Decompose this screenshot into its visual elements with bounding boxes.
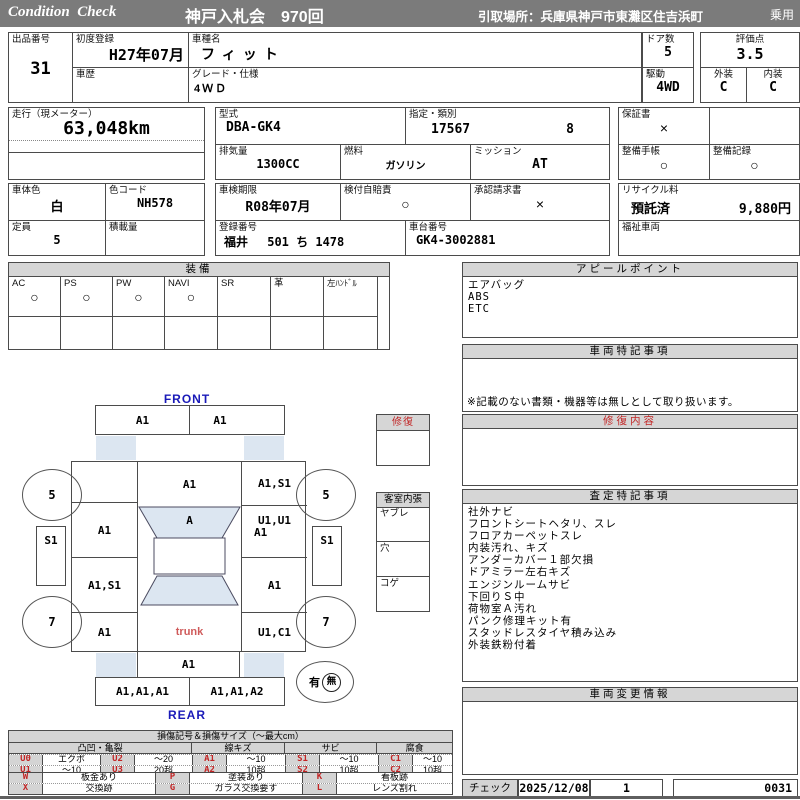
class-no-value: 17567 [431,122,470,137]
model-code-box: 型式 DBA-GK4 指定・類別 17567 8 排気量 1300CC 燃料 ガ… [215,107,610,180]
vehicle-notes-section: 車両特記事項 ※記載のない書類・機器等は無しとして取り扱います。 [462,344,798,412]
equipment-cell-lhd: 左ﾊﾝﾄﾞﾙ [324,277,378,317]
load-label: 積載量 [106,221,204,233]
model-code-value: DBA-GK4 [216,120,405,135]
doors-drive-box: ドア数 5 駆動 4WD [642,32,694,103]
trunk-label: trunk [138,613,241,651]
rear-pillar-right [244,653,284,677]
assessment-item: 下回りＳ中 [468,591,797,603]
presence-no-label-circled: 無 [322,673,341,692]
equipment-table: 装備 AC ○ PS ○ PW ○ NAVI ○ SR 革 左ﾊﾝﾄﾞﾙ [8,262,390,350]
inspection-label: 車検期限 [216,184,340,196]
history-label: 車歴 [73,68,188,80]
model-name-cell: 車種名 フィット [189,33,641,68]
repair-presence-ellipse: 有 無 [296,661,354,703]
change-info-body [463,702,797,704]
chassis-value: GK4-3002881 [406,233,609,247]
equipment-cell-ps: PS ○ [61,277,113,317]
mission-value: AT [471,157,609,172]
capacity-cell: 定員 5 [9,221,106,255]
legend-code: U0 [9,755,43,765]
insurance-cell: 検付自賠責 ○ [341,184,471,221]
hood-right-cell: A1 [190,406,284,434]
maintenance-book-cell: 整備手帳 ○ [619,145,710,179]
legend-title: 損傷記号＆損傷サイズ（〜最大cm） [9,731,452,743]
tailgate-mark: A1 [138,652,239,676]
color-box: 車体色 白 色コード NH578 定員 5 積載量 [8,183,205,256]
interior-value: C [747,80,799,95]
equipment-cell-pw: PW ○ [113,277,165,317]
legend-row: U0 エクボ U2 〜20 A1 〜10 S1 〜10 C1 〜10 [9,754,452,765]
damage-legend-table: 損傷記号＆損傷サイズ（〜最大cm） 凸凹・亀裂 線キズ サビ 腐食 U0 エクボ… [8,730,453,777]
legend-value: 塗装あり [190,773,303,783]
left-door-rear-mark: A1,S1 [72,558,137,612]
appeal-section: アピールポイント エアバッグ ABS ETC [462,262,798,338]
fuel-label: 燃料 [341,145,470,157]
equipment-label: PW [113,277,164,289]
rear-bumper-bar: A1,A1,A1 A1,A1,A2 [95,677,285,706]
displacement-cell: 排気量 1300CC [216,145,341,179]
body-color-value: 白 [9,196,105,215]
assessment-item: スタッドレスタイヤ積み込み [468,627,797,639]
brand-logo: Condition Check [8,4,116,21]
right-door-rear-cell: A1 [241,558,307,613]
legend-group-rust: サビ [285,743,378,753]
mission-cell: ミッション AT [471,145,609,179]
warranty-mark: × [619,120,709,136]
recycle-box: リサイクル料 預託済 9,880円 福祉車両 [618,183,800,256]
check-label-cell: チェック [462,779,518,797]
maintenance-record-mark: ○ [710,157,799,173]
equipment-label: PS [61,277,112,289]
wheel-rear-left: 7 [22,596,82,648]
equipment-label: 革 [271,277,323,289]
left-door-rear-cell: A1,S1 [72,558,138,613]
wheel-front-left: 5 [22,469,82,521]
class-label: 指定・類別 [406,108,609,120]
legend-code: K [303,773,337,783]
mission-label: ミッション [471,145,609,157]
assessment-title: 査定特記事項 [463,490,797,504]
front-label: FRONT [147,392,227,406]
equipment-mark: ○ [9,289,60,305]
rear-pillar-left [96,653,136,677]
car-body: A1 A1,S1 A1 A1 A trunk A1,S1 U1,U1 A1 [71,461,306,652]
reg-no-value: 福井 501 ち 1478 [216,233,405,250]
equipment-empty-cell [61,317,113,349]
change-info-section: 車両変更情報 [462,687,798,775]
legend-value: ガラス交換要す [190,784,303,794]
front-pillar-left [96,436,136,460]
repair-detail-title: 修復内容 [463,415,797,429]
legend-value: 板金あり [43,773,156,783]
maintenance-book-mark: ○ [619,157,709,173]
fuel-value: ガソリン [341,157,470,172]
maintenance-record-cell: 整備記録 ○ [710,145,799,179]
change-info-title: 車両変更情報 [463,688,797,702]
mirror-right-mark: S1 [313,527,341,547]
tailgate-cell: A1 [137,652,240,677]
legend-code: L [303,784,337,794]
equipment-empty-cell [113,317,165,349]
legend-code: A1 [193,755,227,765]
grade-label: グレード・仕様 [189,68,641,80]
page-bottom-rule [0,796,800,799]
inspection-value: R08年07月 [216,196,340,215]
cabin-lining-row-tear: ヤブレ [377,507,429,542]
model-name-value: フィット [189,44,641,64]
right-door-front-cell: U1,U1 A1 [241,506,307,558]
score-box: 評価点 3.5 外装 C 内装 C [700,32,800,103]
rear-label: REAR [147,708,227,722]
fuel-cell: 燃料 ガソリン [341,145,471,179]
hood-left-cell: A1 [96,406,190,434]
vehicle-notes-title: 車両特記事項 [463,345,797,359]
exterior-cell: 外装 C [701,68,747,102]
warranty-empty-cell [710,108,799,145]
repair-flag-box: 修復 [376,414,430,466]
assessment-item: フロントシートヘタリ、スレ [468,518,797,530]
mirror-left-box: S1 [36,526,66,586]
warranty-label: 保証書 [619,108,709,120]
mileage-value: 63,048km [9,118,204,139]
drive-cell: 駆動 4WD [643,68,693,102]
doors-value: 5 [643,45,693,60]
hood-right-mark: A1 [190,406,250,434]
lot-number-cell: 出品番号 31 [9,33,73,102]
check-date-cell: 2025/12/08 [518,779,590,797]
load-cell: 積載量 [106,221,204,255]
windshield-mark: A [138,510,241,530]
right-door-front-mark2: A1 [242,527,307,539]
interior-label: 内装 [747,68,799,80]
right-door-front-mark1: U1,U1 [242,515,307,527]
recycle-status: 預託済 [631,198,670,217]
displacement-label: 排気量 [216,145,340,157]
vehicle-class: 乗用 [770,6,794,23]
vehicle-id-box: 出品番号 31 初度登録 H27年07月 車歴 車種名 フィット グレード・仕様… [8,32,642,103]
cabin-lining-box: 客室内張 ヤブレ 穴 コゲ [376,492,430,612]
exterior-label: 外装 [701,68,746,80]
check-count: 1 [591,780,662,796]
color-code-value: NH578 [106,196,204,210]
wheel-front-right: 5 [296,469,356,521]
mileage-cell: 走行（現メーター） 63,048km [9,108,204,141]
lot-number-value: 31 [9,59,72,79]
doors-label: ドア数 [643,33,693,45]
assessment-item: フロアカーペットスレ [468,530,797,542]
first-reg-cell: 初度登録 H27年07月 [73,33,189,68]
warranty-box: 保証書 × 整備手帳 ○ 整備記録 ○ [618,107,800,180]
reg-no-label: 登録番号 [216,221,405,233]
wheel-rear-right: 7 [296,596,356,648]
check-date: 2025/12/08 [519,780,589,796]
insurance-label: 検付自賠責 [341,184,470,196]
legend-code: C1 [379,755,413,765]
cabin-lining-row-label: 穴 [377,542,429,554]
warranty-cell: 保証書 × [619,108,710,145]
recycle-cell: リサイクル料 預託済 9,880円 [619,184,799,221]
assessment-item: パンク修理キット有 [468,615,797,627]
appeal-item: ETC [468,303,797,315]
mileage-extra-row [9,141,204,153]
equipment-label: 左ﾊﾝﾄﾞﾙ [324,277,377,289]
legend-value: エクボ [43,755,101,765]
assessment-item: アンダーカバー１部欠損 [468,554,797,566]
equipment-cell-leather: 革 [271,277,324,317]
doors-cell: ドア数 5 [643,33,693,68]
equipment-cell-navi: NAVI ○ [165,277,218,317]
score-cell: 評価点 3.5 [701,33,799,68]
equipment-empty-cell [218,317,271,349]
pickup-location: 引取場所：兵庫県神戸市東灘区住吉浜町 [478,6,703,25]
roof-panel-shape [154,538,225,574]
legend-code: G [156,784,190,794]
presence-yes-label: 有 [309,674,320,690]
legend-code: U2 [101,755,135,765]
legend-code: X [9,784,43,794]
assessment-item: ドアミラー左右キズ [468,566,797,578]
interior-cell: 内装 C [747,68,799,102]
model-code-label: 型式 [216,108,405,120]
appeal-item: エアバッグ [468,279,797,291]
equipment-cell-sr: SR [218,277,271,317]
left-door-front-cell: A1 [72,503,138,558]
assessment-item: 内装汚れ、キズ [468,542,797,554]
reg-no-cell: 登録番号 福井 501 ち 1478 [216,221,406,255]
auction-title: 神戸入札会 970回 [185,3,324,27]
mirror-right-box: S1 [312,526,342,586]
legend-value: 〜10 [227,755,286,765]
appeal-item: ABS [468,291,797,303]
legend-code: W [9,773,43,783]
approval-label: 承認請求書 [471,184,609,196]
trunk-cell: trunk [138,613,241,651]
roof-front-mark: A1 [138,462,241,506]
legend-value: レンズ割れ [337,784,452,794]
sheet-number-cell: 0031 [673,779,798,797]
repair-detail-body [463,429,797,431]
score-value: 3.5 [701,45,799,63]
repair-mark-legend-table: W 板金あり P 塗装あり K 看板跡 X 交換跡 G ガラス交換要す L レン… [8,772,453,795]
recycle-label: リサイクル料 [619,184,799,196]
equipment-mark: ○ [61,289,112,305]
legend-code: S1 [286,755,320,765]
cabin-lining-row-hole: 穴 [377,542,429,577]
bumper-left-mark: A1,A1,A1 [96,678,189,705]
equipment-label: AC [9,277,60,289]
equipment-empty-cell [9,317,61,349]
assessment-item: 社外ナビ [468,506,797,518]
mirror-left-mark: S1 [37,527,65,547]
legend-group-corrosion: 腐食 [377,743,452,753]
chassis-cell: 車台番号 GK4-3002881 [406,221,609,255]
cabin-lining-row-burn: コゲ [377,577,429,611]
equipment-label: SR [218,277,270,289]
legend-value: 〜20 [135,755,193,765]
equipment-cell-ac: AC ○ [9,277,61,317]
left-door-front-mark: A1 [72,503,137,557]
mileage-box: 走行（現メーター） 63,048km [8,107,205,180]
capacity-label: 定員 [9,221,105,233]
right-door-rear-mark: A1 [242,558,307,612]
body-color-cell: 車体色 白 [9,184,106,221]
legend-value: 看板跡 [337,773,452,783]
hood-left-mark: A1 [96,406,189,434]
approval-cell: 承認請求書 × [471,184,609,221]
color-code-cell: 色コード NH578 [106,184,204,221]
equipment-label: NAVI [165,277,217,289]
assessment-item: エンジンルームサビ [468,579,797,591]
cabin-lining-title: 客室内張 [377,493,429,508]
appeal-title: アピールポイント [463,263,797,277]
welfare-cell: 福祉車両 [619,221,799,255]
roof-front-cell: A1 [138,462,241,506]
displacement-value: 1300CC [216,157,340,171]
legend-group-dent: 凸凹・亀裂 [9,743,192,753]
score-label: 評価点 [701,33,799,45]
legend-group-scratch: 線キズ [192,743,285,753]
equipment-title: 装備 [9,263,389,277]
bumper-left-cell: A1,A1,A1 [96,678,190,705]
legend-code: P [156,773,190,783]
insurance-mark: ○ [341,196,470,212]
assessment-item: 荷物室Ａ汚れ [468,603,797,615]
maintenance-book-label: 整備手帳 [619,145,709,157]
vehicle-notes-note: ※記載のない書類・機器等は無しとして取り扱います。 [467,394,739,409]
exterior-value: C [701,80,746,95]
legend-row: W 板金あり P 塗装あり K 看板跡 [9,773,452,783]
equipment-mark: ○ [165,289,217,305]
model-code-cell: 型式 DBA-GK4 [216,108,406,145]
legend-value: 〜10 [320,755,379,765]
left-rear-cell: A1 [72,613,138,651]
body-color-label: 車体色 [9,184,105,196]
recycle-fee: 9,880円 [739,198,791,217]
welfare-label: 福祉車両 [619,221,799,233]
header-bar: Condition Check 神戸入札会 970回 引取場所：兵庫県神戸市東灘… [0,0,800,27]
equipment-mark: ○ [113,289,164,305]
assessment-section: 査定特記事項 社外ナビ フロントシートヘタリ、スレ フロアカーペットスレ 内装汚… [462,489,798,682]
grade-cell: グレード・仕様 4ＷＤ [189,68,641,102]
drive-label: 駆動 [643,68,693,80]
first-reg-value: H27年07月 [73,44,188,65]
chassis-label: 車台番号 [406,221,609,233]
auction-sheet: Condition Check 神戸入札会 970回 引取場所：兵庫県神戸市東灘… [0,0,800,800]
hood-bar: A1 A1 [95,405,285,435]
color-code-label: 色コード [106,184,204,196]
equipment-empty-cell [324,317,378,349]
front-pillar-right [244,436,284,460]
cabin-lining-row-label: ヤブレ [377,507,429,519]
assessment-item: 外装鉄粉付着 [468,639,797,651]
history-cell: 車歴 [73,68,189,102]
cabin-lining-row-label: コゲ [377,577,429,589]
grade-value: 4ＷＤ [189,80,641,96]
drive-value: 4WD [643,80,693,95]
equipment-empty-cell [271,317,324,349]
maintenance-record-label: 整備記録 [710,145,799,157]
registration-box: 車検期限 R08年07月 検付自賠責 ○ 承認請求書 × 登録番号 福井 501… [215,183,610,256]
class-no2-value: 8 [566,122,574,137]
legend-value: 交換跡 [43,784,156,794]
repair-flag-title: 修復 [377,415,429,431]
class-cell: 指定・類別 17567 8 [406,108,609,145]
bumper-right-cell: A1,A1,A2 [190,678,284,705]
approval-mark: × [471,196,609,212]
legend-value: 〜10 [413,755,452,765]
equipment-empty-cell [165,317,218,349]
bumper-right-mark: A1,A1,A2 [190,678,284,705]
rear-glass-shape [141,576,238,605]
sheet-number: 0031 [674,780,797,796]
check-count-cell: 1 [590,779,663,797]
legend-row: X 交換跡 G ガラス交換要す L レンズ割れ [9,783,452,794]
capacity-value: 5 [9,233,105,247]
lot-number-label: 出品番号 [9,33,72,45]
repair-detail-section: 修復内容 [462,414,798,486]
inspection-cell: 車検期限 R08年07月 [216,184,341,221]
